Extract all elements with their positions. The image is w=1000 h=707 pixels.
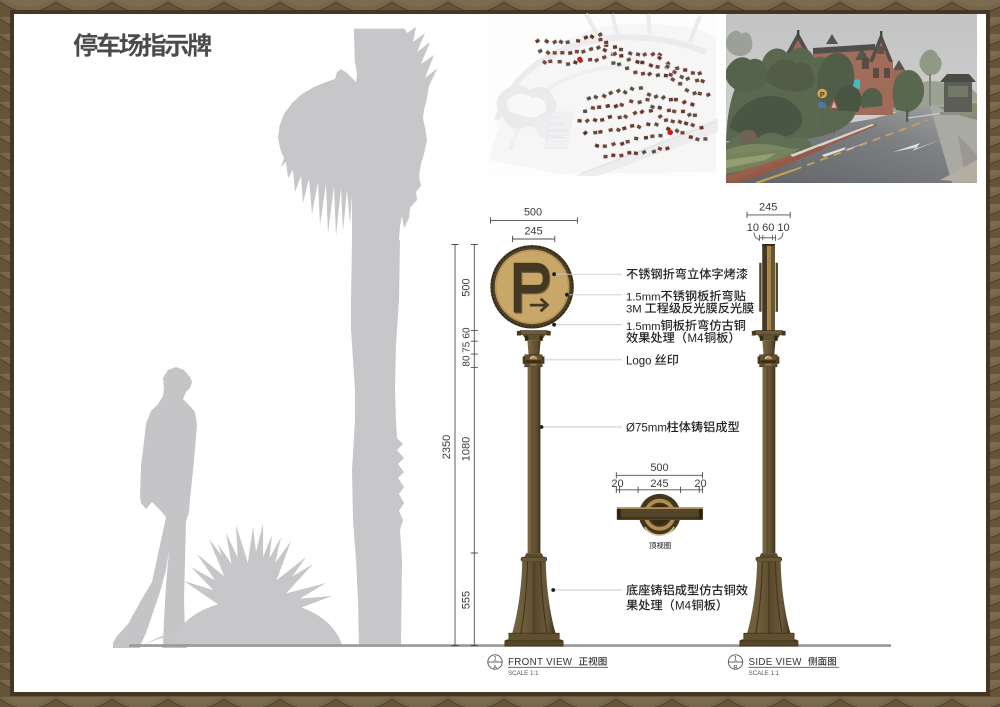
svg-text:80: 80 <box>461 355 472 367</box>
svg-text:2350: 2350 <box>441 435 453 459</box>
svg-text:SIDE VIEW: SIDE VIEW <box>749 657 803 668</box>
svg-text:20: 20 <box>694 478 706 490</box>
svg-text:60: 60 <box>461 327 472 339</box>
svg-text:1080: 1080 <box>460 437 472 461</box>
svg-text:FRONT VIEW: FRONT VIEW <box>508 657 573 668</box>
svg-text:245: 245 <box>524 225 542 237</box>
svg-text:M4: M4 <box>688 333 705 345</box>
svg-text:500: 500 <box>460 278 472 296</box>
svg-text:1.5mm: 1.5mm <box>626 321 661 333</box>
svg-text:Ø75mm: Ø75mm <box>626 422 667 434</box>
svg-text:1.5mm: 1.5mm <box>626 291 661 303</box>
svg-text:75: 75 <box>461 341 472 353</box>
svg-text:SCALE 1:1: SCALE 1:1 <box>508 670 539 677</box>
svg-text:20: 20 <box>611 478 623 490</box>
svg-text:10 60 10: 10 60 10 <box>747 222 790 234</box>
svg-text:A: A <box>493 664 498 671</box>
svg-text:1: 1 <box>493 655 497 662</box>
svg-text:245: 245 <box>650 478 668 490</box>
svg-text:3M: 3M <box>626 304 642 316</box>
svg-text:500: 500 <box>524 207 542 219</box>
svg-text:555: 555 <box>460 591 472 609</box>
svg-text:B: B <box>733 664 737 671</box>
svg-text:M4: M4 <box>675 601 692 613</box>
svg-text:1: 1 <box>734 655 738 662</box>
svg-text:SCALE 1:1: SCALE 1:1 <box>749 670 780 677</box>
svg-text:Logo: Logo <box>626 355 652 367</box>
svg-text:245: 245 <box>759 201 777 213</box>
svg-text:500: 500 <box>650 462 668 474</box>
